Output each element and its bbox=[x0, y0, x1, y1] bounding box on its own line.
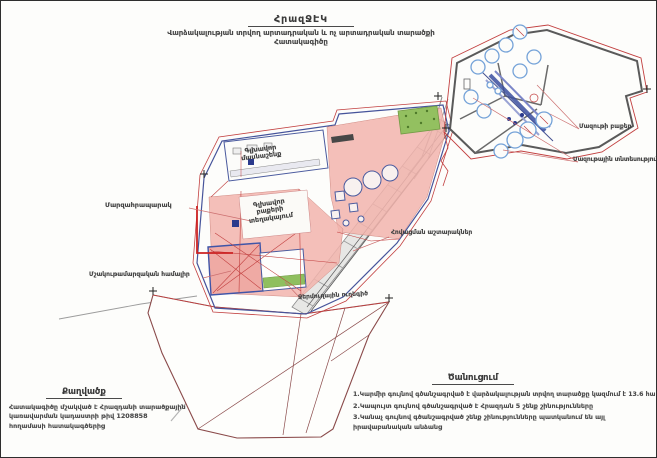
excerpt-line: հողամասի հատակագծերից bbox=[9, 422, 186, 431]
blue-structure bbox=[232, 220, 239, 227]
label-sports-ground: Մարզահրապարակ bbox=[105, 202, 172, 209]
green-area bbox=[398, 106, 440, 134]
notice-item-3: 3.Կանաչ գույնով գծանշագրված շենք շինությ… bbox=[353, 413, 635, 432]
excerpt-title: Քաղվածք bbox=[9, 387, 159, 399]
cultural-sports-building bbox=[208, 243, 263, 295]
label-cooling-towers: Հովացման աշտարակներ bbox=[391, 230, 472, 237]
plan-subtitle-line1: Վարձակալության տրվող արտադրական և ոչ արտ… bbox=[121, 29, 481, 38]
notice-item-1: 1.Կարմիր գույնով գծանշագրված է վարձակալո… bbox=[353, 391, 653, 400]
plan-subtitle-line2: Հատակագիծը bbox=[121, 38, 481, 47]
scanned-site-plan-page: ՀրազՋԷԿ Վարձակալության տրվող արտադրական … bbox=[0, 0, 657, 458]
notice-title: Ծանուցում bbox=[353, 373, 593, 385]
label-mazut-facility: Մազութային տնտեսություն bbox=[573, 157, 657, 164]
label-cultural-sports-complex: Մշակութամարզական համալիր bbox=[89, 272, 190, 279]
white-building-green-strip bbox=[260, 249, 306, 291]
excerpt-body: Հատակագիծը մշակված է Հրազդանի տարածքային… bbox=[9, 403, 186, 431]
notice-body: 1.Կարմիր գույնով գծանշագրված է վարձակալո… bbox=[353, 391, 653, 434]
plan-title: ՀրազՋԷԿ bbox=[248, 14, 354, 27]
label-mazut-tanks: Մազութի բաքեր bbox=[579, 124, 631, 131]
excerpt-line: Հատակագիծը մշակված է Հրազդանի տարածքային bbox=[9, 403, 186, 412]
plan-subtitle: Վարձակալության տրվող արտադրական և ոչ արտ… bbox=[121, 29, 481, 47]
excerpt-line: կառավարման կադաստրի թիվ 1208858 bbox=[9, 412, 186, 421]
plan-header: ՀրազՋԷԿ Վարձակալության տրվող արտադրական … bbox=[121, 7, 481, 47]
notice-item-2: 2.Կապույտ գույնով գծանշագրված է Հրազդան … bbox=[353, 402, 653, 411]
